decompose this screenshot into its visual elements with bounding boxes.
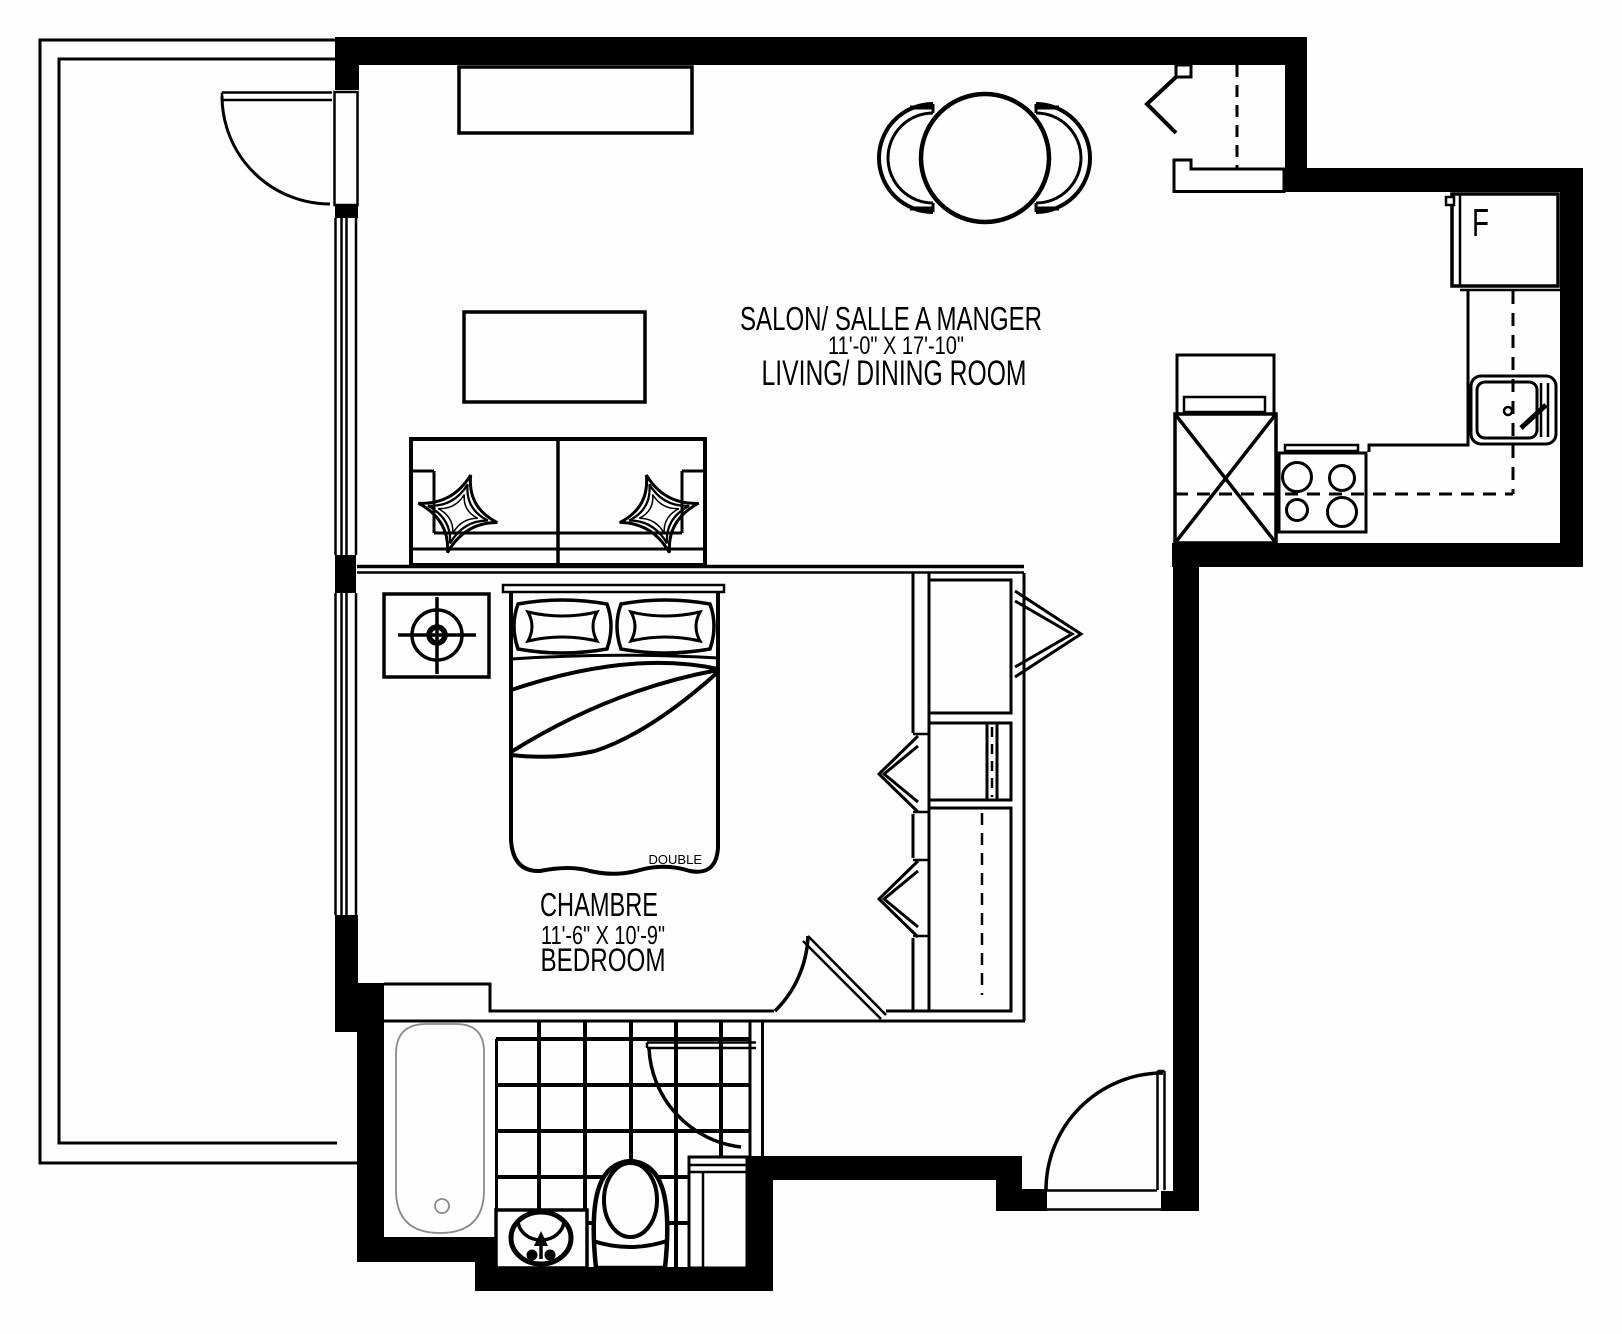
svg-text:CHAMBRE: CHAMBRE: [540, 886, 658, 923]
svg-text:LIVING/ DINING ROOM: LIVING/ DINING ROOM: [762, 354, 1027, 393]
svg-text:DOUBLE: DOUBLE: [649, 852, 703, 867]
svg-text:F: F: [1472, 202, 1489, 245]
svg-text:BEDROOM: BEDROOM: [541, 942, 666, 978]
